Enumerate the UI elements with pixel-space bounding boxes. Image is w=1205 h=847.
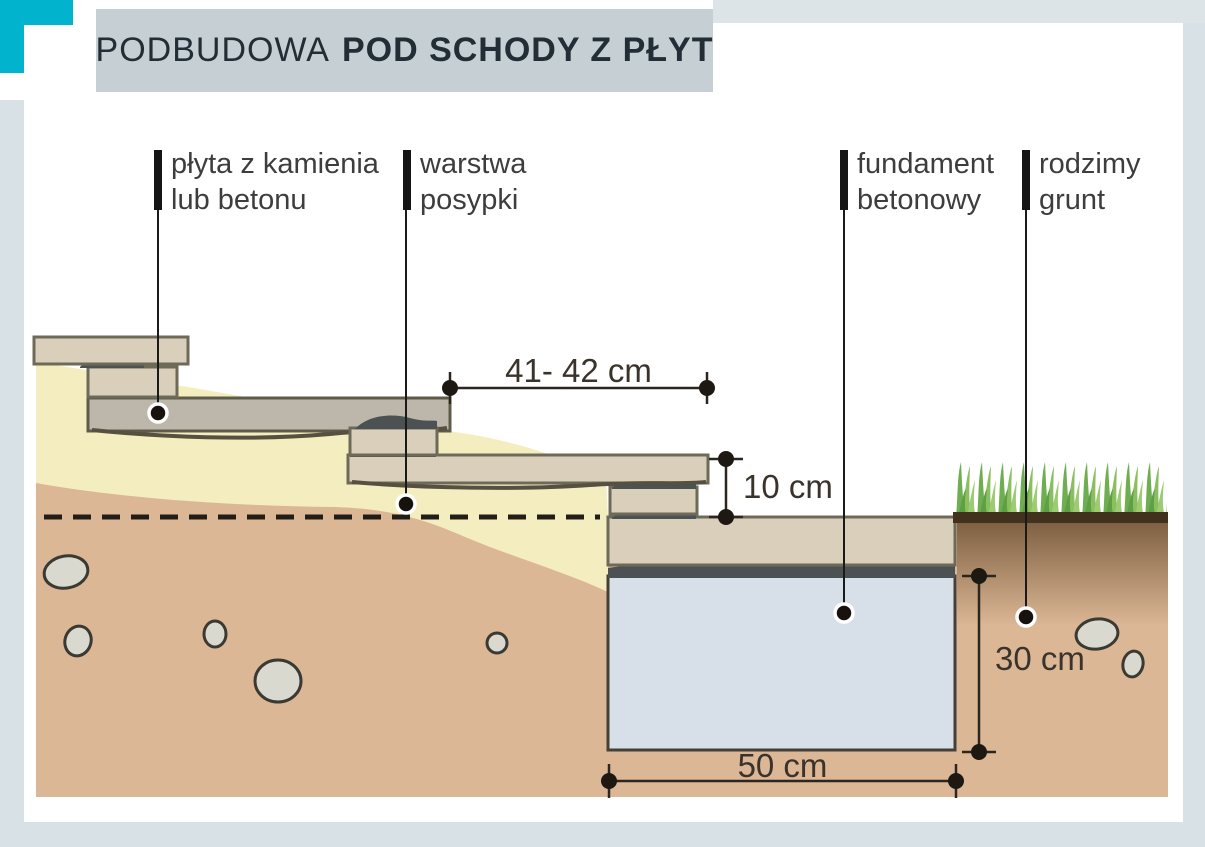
lawn-group — [953, 456, 1168, 523]
callout-bar — [154, 150, 162, 210]
callout-bar — [840, 150, 848, 210]
callout-slab: płyta z kamienia lub betonu — [154, 146, 379, 218]
topsoil-gradient — [957, 521, 1168, 626]
stone — [487, 633, 507, 653]
stone — [255, 660, 301, 702]
callout-bedding: warstwa posypki — [403, 146, 526, 218]
callout-bedding-line2: posypki — [420, 182, 526, 218]
callout-bar — [1022, 150, 1030, 210]
infographic-page: PODBUDOWA POD SCHODY Z PŁYT — [0, 0, 1205, 847]
dimension-foundation-depth: 30 cm — [995, 640, 1085, 678]
concrete-foundation — [608, 576, 955, 750]
stone — [204, 621, 226, 647]
grass-blades — [955, 456, 1167, 518]
callout-bar — [403, 150, 411, 210]
callout-native-soil-line1: rodzimy — [1039, 146, 1141, 182]
callout-bedding-line1: warstwa — [420, 146, 526, 182]
callout-foundation-line1: fundament — [857, 146, 994, 182]
step2-group — [348, 455, 708, 488]
callout-native-soil-line2: grunt — [1039, 182, 1141, 218]
dimension-tread-depth: 41- 42 cm — [450, 352, 707, 390]
callout-foundation-line2: betonowy — [857, 182, 994, 218]
dimension-step-height: 10 cm — [743, 468, 833, 506]
step1-top-slab — [34, 337, 188, 364]
callout-foundation: fundament betonowy — [840, 146, 994, 218]
topsoil-strip — [953, 512, 1168, 523]
callout-native-soil: rodzimy grunt — [1022, 146, 1141, 218]
dimension-foundation-width: 50 cm — [609, 747, 956, 785]
callout-slab-line1: płyta z kamienia — [171, 146, 379, 182]
landing-slab — [608, 517, 955, 565]
step2-tread-slab — [348, 455, 708, 483]
callout-slab-line2: lub betonu — [171, 182, 379, 218]
foundation-group — [608, 517, 955, 750]
cross-section-drawing — [0, 0, 1205, 847]
step2-block — [350, 428, 437, 455]
step1-block — [88, 367, 177, 397]
step3-block — [610, 487, 697, 514]
